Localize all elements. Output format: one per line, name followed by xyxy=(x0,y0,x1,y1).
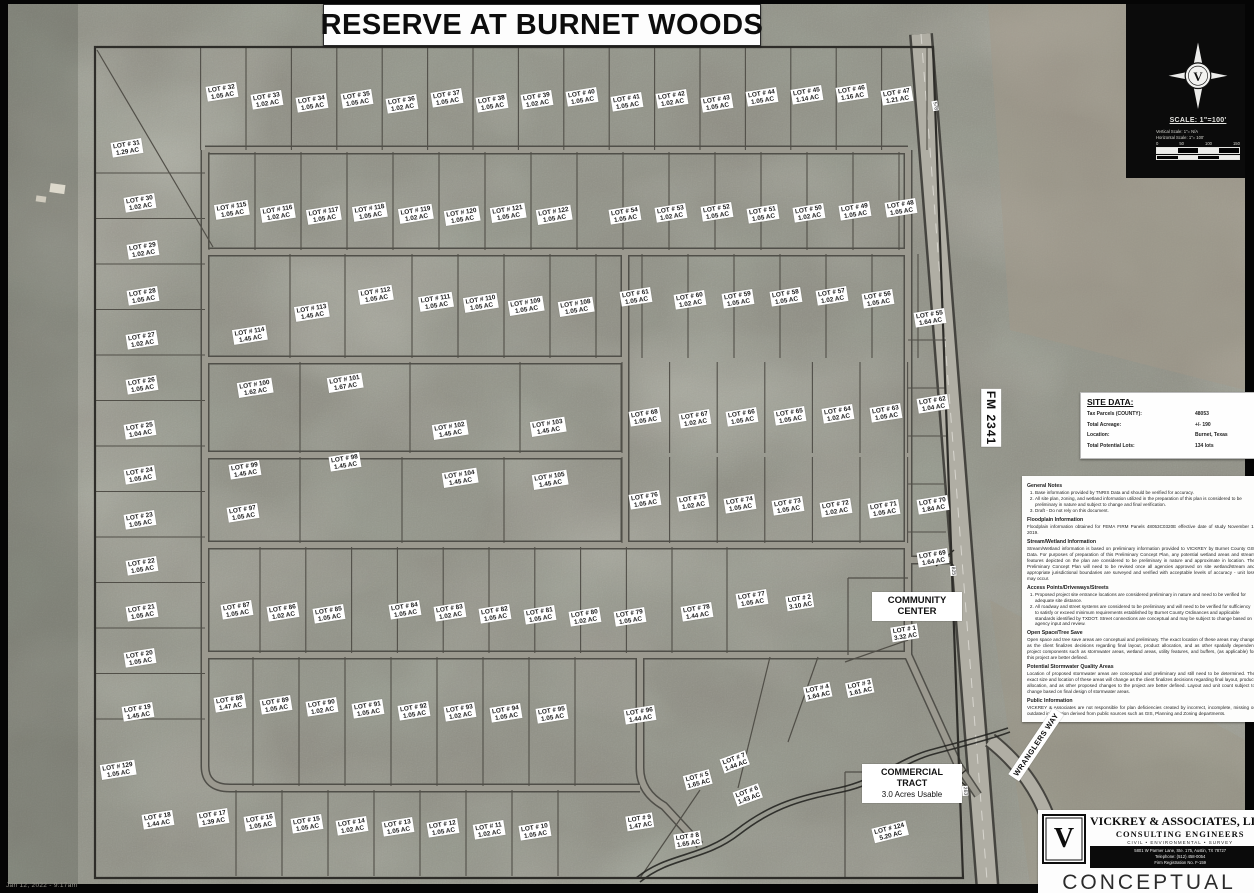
aerial-photo xyxy=(8,0,1254,893)
plan-title: RESERVE AT BURNET WOODS xyxy=(321,9,764,42)
scale-notes: Vertical Scale: 1"= N/A Horizontal Scale… xyxy=(1156,129,1246,140)
notes-panel: General NotesBase information provided b… xyxy=(1022,476,1254,722)
notes-item: Proposed project site entrance locations… xyxy=(1035,592,1254,604)
site-data-panel: SITE DATA: Tax Parcels (COUNTY):48053Tot… xyxy=(1080,392,1254,459)
plot-date-stamp: Jan 12, 2022 - 9:17am xyxy=(6,882,77,889)
site-data-row: Location:Burnet, Texas xyxy=(1087,432,1254,438)
scale-bar-secondary xyxy=(1156,155,1240,160)
site-data-rows: Tax Parcels (COUNTY):48053Total Acreage:… xyxy=(1087,411,1254,449)
scale-tick: 50 xyxy=(1179,141,1184,146)
conceptual-stamp: CONCEPTUAL xyxy=(1042,871,1254,893)
station-label: 263 xyxy=(962,786,969,797)
company-text: VICKREY & ASSOCIATES, LLC. CONSULTING EN… xyxy=(1090,814,1254,868)
commercial-tract-line1: COMMERCIAL xyxy=(864,767,960,778)
site-data-heading: SITE DATA: xyxy=(1087,397,1254,407)
svg-text:V: V xyxy=(1193,70,1203,84)
scale-bar-segment xyxy=(1219,156,1240,159)
notes-item: All roadway and street systems are consi… xyxy=(1035,604,1254,628)
scale-bar-segment xyxy=(1219,148,1240,153)
notes-heading: Access Points/Driveways/Streets xyxy=(1027,585,1254,591)
notes-list: Base information provided by TNRIS Data … xyxy=(1027,490,1254,514)
tree-band xyxy=(8,4,78,884)
scale-bar-segment xyxy=(1178,156,1199,159)
site-data-label: Total Potential Lots: xyxy=(1087,443,1135,449)
notes-heading: Stream/Wetland Information xyxy=(1027,539,1254,545)
scale-bar-segment xyxy=(1198,148,1219,153)
site-data-value: Burnet, Texas xyxy=(1195,432,1254,438)
notes-heading: Open Space/Tree Save xyxy=(1027,630,1254,636)
company-services: CIVIL • ENVIRONMENTAL • SURVEY xyxy=(1090,840,1254,845)
scale-bar-segment xyxy=(1157,148,1178,153)
commercial-tract-label: COMMERCIAL TRACT 3.0 Acres Usable xyxy=(862,764,962,803)
scale-label: SCALE: 1"=100' xyxy=(1150,117,1246,124)
notes-item: All site plan, zoning, and wetland infor… xyxy=(1035,496,1254,508)
scale-bar-segment xyxy=(1157,156,1178,159)
station-label: 825 xyxy=(950,566,957,577)
scale-bar-segment xyxy=(1198,156,1219,159)
company-row: V VICKREY & ASSOCIATES, LLC. CONSULTING … xyxy=(1042,814,1254,868)
scale-bar-segment xyxy=(1178,148,1199,153)
notes-heading: Floodplain Information xyxy=(1027,517,1254,523)
scale-tick: 0 xyxy=(1156,141,1158,146)
site-data-value: 48053 xyxy=(1195,411,1254,417)
scale-tick: 100 xyxy=(1205,141,1212,146)
vickrey-monogram: V xyxy=(1054,825,1074,853)
horizontal-scale: Horizontal Scale: 1"= 100' xyxy=(1156,135,1246,141)
site-data-label: Total Acreage: xyxy=(1087,422,1121,428)
company-address-block: 5801 W Parmer Lane, Ste. 175, Austin, TX… xyxy=(1090,846,1254,868)
community-center-label: COMMUNITY CENTER xyxy=(872,592,962,621)
vickrey-logo-icon: V xyxy=(1042,814,1086,864)
notes-paragraph: Location of proposed stormwater areas ar… xyxy=(1027,671,1254,695)
site-data-value: 134 lots xyxy=(1195,443,1254,449)
fm-2341-label: FM 2341 xyxy=(981,389,1001,447)
aerial-map xyxy=(0,0,1254,893)
plan-title-box: RESERVE AT BURNET WOODS xyxy=(323,4,761,46)
site-data-label: Location: xyxy=(1087,432,1110,438)
notes-heading: Potential Stormwater Quality Areas xyxy=(1027,664,1254,670)
company-panel: V VICKREY & ASSOCIATES, LLC. CONSULTING … xyxy=(1038,810,1254,893)
site-data-row: Total Potential Lots:134 lots xyxy=(1087,443,1254,449)
site-data-value: +/- 190 xyxy=(1195,422,1254,428)
community-center-line1: COMMUNITY xyxy=(874,595,960,606)
notes-paragraph: Stream/Wetland information is based on p… xyxy=(1027,546,1254,582)
site-data-label: Tax Parcels (COUNTY): xyxy=(1087,411,1142,417)
site-data-row: Total Acreage:+/- 190 xyxy=(1087,422,1254,428)
commercial-tract-line2: TRACT xyxy=(864,778,960,789)
notes-paragraph: Open space and tree save areas are conce… xyxy=(1027,637,1254,661)
community-center-line2: CENTER xyxy=(874,606,960,617)
notes-heading: Public Information xyxy=(1027,698,1254,704)
site-data-row: Tax Parcels (COUNTY):48053 xyxy=(1087,411,1254,417)
notes-list: Proposed project site entrance locations… xyxy=(1027,592,1254,628)
company-subtitle: CONSULTING ENGINEERS xyxy=(1090,829,1254,839)
commercial-tract-line3: 3.0 Acres Usable xyxy=(864,790,960,800)
scale-bar-ticks: 050100150 xyxy=(1156,141,1240,146)
company-address-line: Firm Registration No. F-159 xyxy=(1090,860,1254,866)
company-name: VICKREY & ASSOCIATES, LLC. xyxy=(1090,814,1254,829)
compass-panel: V SCALE: 1"=100' Vertical Scale: 1"= N/A… xyxy=(1150,42,1246,160)
notes-heading: General Notes xyxy=(1027,483,1254,489)
scale-bar xyxy=(1156,147,1240,154)
north-arrow-icon: V xyxy=(1166,42,1230,112)
notes-item: Draft - Do not rely on this document. xyxy=(1035,508,1254,514)
notes-paragraph: Floodplain information obtained for FEMA… xyxy=(1027,524,1254,536)
scale-tick: 150 xyxy=(1233,141,1240,146)
plan-sheet: RESERVE AT BURNET WOODS V SCALE: 1"=100'… xyxy=(0,0,1254,893)
